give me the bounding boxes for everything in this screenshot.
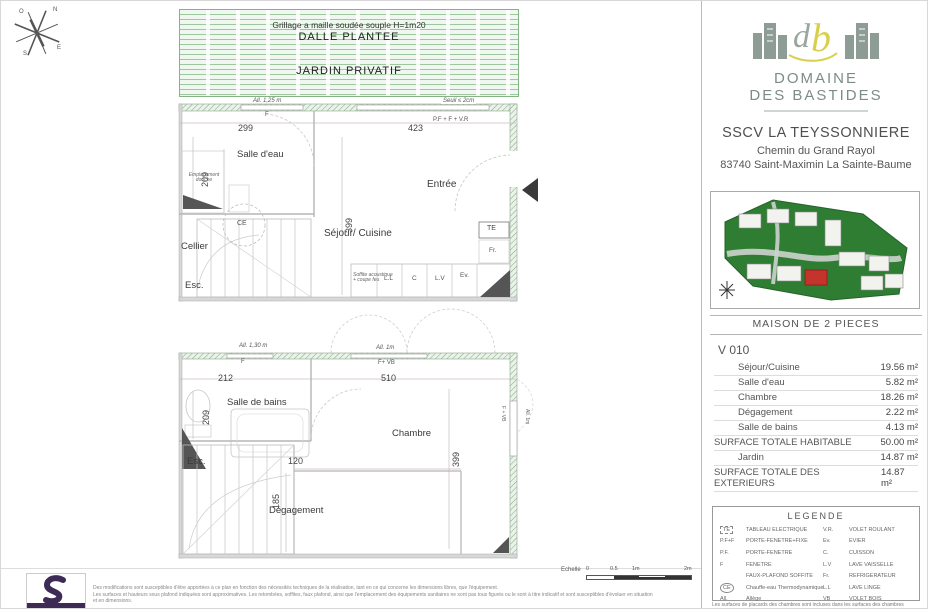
window-f-lower-label: F — [241, 359, 245, 365]
legend-item: FFENETRE — [713, 559, 816, 571]
cuisson-label: C — [412, 276, 417, 283]
legend-desc: EVIER — [849, 538, 866, 544]
highlighted-unit — [805, 270, 827, 285]
legend-footnote: Les surfaces de placards des chambres so… — [712, 602, 924, 608]
compass-north-label: N — [53, 7, 57, 13]
soffite-note-line2: + coupe feu — [353, 277, 379, 283]
address-line2: 83740 Saint-Maximin La Sainte-Baume — [702, 159, 928, 171]
brand-rule — [764, 110, 868, 112]
table-row: Salle d'eau5.82 m² — [714, 376, 918, 391]
developer-logo-mark — [27, 574, 85, 609]
evier-label: Ev. — [460, 273, 469, 280]
legend-box: LEGENDE TETABLEAU ELECTRIQUE P.F+FPORTE-… — [712, 506, 920, 601]
row-label: Jardin — [714, 452, 764, 463]
room-degagement-label: Dégagement — [269, 506, 323, 516]
dim-212: 212 — [218, 374, 233, 383]
dim-299: 299 — [238, 124, 253, 133]
allege-right-label: All. 1m — [524, 409, 529, 424]
legend-desc: VOLET ROULANT — [849, 527, 895, 533]
compass-rose — [6, 2, 68, 64]
row-value: 50.00 m² — [881, 437, 919, 448]
table-row: Séjour/Cuisine19.56 m² — [714, 361, 918, 376]
scale-tick-2m: 2m — [684, 566, 692, 572]
legend-desc: LAVE VAISSELLE — [849, 562, 893, 568]
disclaimer-line-1: Des modifications sont susceptibles d'êt… — [93, 585, 653, 591]
room-sejour-label: Séjour/ Cuisine — [324, 229, 392, 240]
allege-1m-label: All. 1m — [376, 345, 394, 351]
plan-sheet: Grillage a maille soudée souple H=1m20 D… — [0, 0, 928, 609]
disclaimer-line-2: Les surfaces et hauteurs sous plafond in… — [93, 592, 653, 604]
f-vb-right-label: F + VB — [500, 406, 505, 421]
dim-423: 423 — [408, 124, 423, 133]
row-label: Dégagement — [714, 407, 792, 418]
legend-abbr: P.F. — [713, 550, 746, 556]
site-compass-icon — [719, 281, 735, 299]
table-row: Dégagement2.22 m² — [714, 406, 918, 421]
legend-abbr: P.F+F — [713, 538, 746, 544]
lave-vaisselle-label: L.V — [435, 276, 445, 283]
legend-left-column: TETABLEAU ELECTRIQUE P.F+FPORTE-FENETRE+… — [713, 524, 816, 605]
legend-item: Fr.REFRIGERATEUR — [816, 570, 919, 582]
legend-item: P.F+FPORTE-FENETRE+FIXE — [713, 536, 816, 548]
dim-209-lower: 209 — [202, 410, 211, 425]
scale-bar — [586, 575, 692, 580]
esc-lower-label: Esc. — [187, 457, 205, 467]
emplacement-douche-label: Emplacement douche — [182, 173, 226, 184]
brand-name-line1: DOMAINE — [702, 70, 928, 87]
legend-right-column: V.R.VOLET ROULANT Ev.EVIER C.CUISSON L.V… — [816, 524, 919, 605]
legend-item: L.LLAVE LINGE — [816, 582, 919, 594]
legend-desc: TABLEAU ELECTRIQUE — [746, 527, 807, 533]
dim-510: 510 — [381, 374, 396, 383]
section-rule-bottom — [710, 334, 922, 335]
compass-east-label: E — [57, 45, 61, 51]
legend-item: Ev.EVIER — [816, 536, 919, 548]
row-value: 18.26 m² — [881, 392, 919, 403]
brand-name-line2: DES BASTIDES — [702, 87, 928, 104]
lave-linge-label: L.L — [384, 276, 393, 283]
legend-item: TETABLEAU ELECTRIQUE — [713, 524, 816, 536]
domaine-des-bastides-logo: d b — [731, 7, 901, 65]
legend-item: C.CUISSON — [816, 547, 919, 559]
scale-label: Echelle — [561, 567, 581, 573]
plan-type-title: MAISON DE 2 PIECES — [710, 318, 922, 330]
scale-tick-1m: 1m — [632, 566, 640, 572]
unit-code: V 010 — [718, 343, 749, 357]
f-vb-label: F+ VB — [378, 360, 395, 366]
compass-south-label: S — [23, 51, 27, 57]
legend-item: L.VLAVE VAISSELLE — [816, 559, 919, 571]
site-plan-map — [711, 192, 919, 308]
svg-text:b: b — [811, 15, 831, 60]
row-label: Séjour/Cuisine — [714, 362, 800, 373]
dim-399-lower: 399 — [452, 452, 461, 467]
allege-125-label: All. 1,25 m — [253, 98, 281, 104]
svg-text:d: d — [793, 18, 811, 55]
legend-item: FAUX-PLAFOND SOFFITE — [713, 570, 816, 582]
legend-desc: Chauffe-eau Thermodynamique — [746, 585, 823, 591]
refrigerateur-label: Fr. — [489, 248, 497, 255]
room-salle-bains-label: Salle de bains — [227, 398, 287, 408]
grillage-note: Grillage a maille soudée souple H=1m20 — [272, 20, 425, 30]
legend-desc: LAVE LINGE — [849, 585, 881, 591]
legend-abbr: F — [713, 562, 746, 568]
scale-tick-05: 0.5 — [610, 566, 618, 572]
room-salle-deau-label: Salle d'eau — [237, 150, 284, 160]
dalle-plantee-label: DALLE PLANTEE — [298, 31, 399, 43]
table-row: Jardin14.87 m² — [714, 451, 918, 466]
legend-desc: PORTE-FENETRE+FIXE — [746, 538, 808, 544]
compass-west-label: O — [19, 9, 24, 15]
row-label: Salle d'eau — [714, 377, 785, 388]
dim-120: 120 — [288, 457, 303, 466]
window-f-label: F — [265, 112, 269, 118]
site-plan-thumbnail — [710, 191, 920, 309]
jardin-privatif-label: JARDIN PRIVATIF — [296, 65, 402, 77]
address-line1: Chemin du Grand Rayol — [702, 145, 928, 157]
room-cellier-label: Cellier — [181, 242, 208, 252]
legend-abbr: Fr. — [816, 573, 849, 579]
table-row: Salle de bains4.13 m² — [714, 421, 918, 436]
row-label: Chambre — [714, 392, 777, 403]
row-label: Salle de bains — [714, 422, 798, 433]
tableau-electrique-label: TE — [487, 225, 496, 232]
legend-desc: FENETRE — [746, 562, 772, 568]
legend-abbr: CE — [720, 583, 734, 593]
esc-upper-label: Esc. — [185, 281, 203, 291]
row-value: 4.13 m² — [886, 422, 918, 433]
legend-title: LEGENDE — [713, 511, 919, 521]
developer-logo — [26, 573, 86, 609]
row-value: 14.87 m² — [881, 452, 919, 463]
table-row: Chambre18.26 m² — [714, 391, 918, 406]
ce-label: CE — [237, 220, 247, 227]
footer-divider — [1, 568, 701, 569]
row-label: SURFACE TOTALE HABITABLE — [714, 437, 852, 448]
legend-abbr: L.V — [816, 562, 849, 568]
title-block-panel: d b DOMAINE DES BASTIDES SSCV LA TEYSSON… — [701, 1, 928, 609]
row-value: 14.87 m² — [881, 467, 918, 489]
legend-item: P.F.PORTE-FENETRE — [713, 547, 816, 559]
legend-abbr: Ev. — [816, 538, 849, 544]
row-value: 5.82 m² — [886, 377, 918, 388]
room-chambre-label: Chambre — [392, 429, 431, 439]
floor-plan-area: Grillage a maille soudée souple H=1m20 D… — [1, 1, 701, 609]
legend-abbr: C. — [816, 550, 849, 556]
section-rule-top — [710, 315, 922, 316]
table-row-total-habitable: SURFACE TOTALE HABITABLE50.00 m² — [714, 436, 918, 451]
legend-item: CEChauffe-eau Thermodynamique — [713, 582, 816, 594]
legend-desc: CUISSON — [849, 550, 874, 556]
legend-desc: PORTE-FENETRE — [746, 550, 792, 556]
scale-tick-0: 0 — [586, 566, 589, 572]
legend-desc: FAUX-PLAFOND SOFFITE — [746, 573, 813, 579]
row-value: 2.22 m² — [886, 407, 918, 418]
legend-abbr: TE — [720, 526, 733, 534]
room-entree-label: Entrée — [427, 180, 456, 191]
jardin-privatif-area: Grillage a maille soudée souple H=1m20 D… — [179, 9, 519, 97]
table-row-total-exterieurs: SURFACE TOTALE DES EXTERIEURS14.87 m² — [714, 466, 918, 492]
row-label: SURFACE TOTALE DES EXTERIEURS — [714, 467, 881, 489]
seuil-label: Seuil ≤ 2cm — [441, 98, 476, 104]
area-table: Séjour/Cuisine19.56 m² Salle d'eau5.82 m… — [714, 361, 918, 492]
company-name: SSCV LA TEYSSONNIERE — [702, 125, 928, 141]
legend-abbr: V.R. — [816, 527, 849, 533]
legend-item: V.R.VOLET ROULANT — [816, 524, 919, 536]
row-value: 19.56 m² — [881, 362, 919, 373]
allege-130-label: All. 1,30 m — [239, 343, 267, 349]
legend-desc: REFRIGERATEUR — [849, 573, 896, 579]
pf-f-vr-label: P.F + F + V.R — [433, 117, 468, 123]
legend-abbr: L.L — [816, 585, 849, 591]
brand-block: d b DOMAINE DES BASTIDES — [702, 7, 928, 112]
